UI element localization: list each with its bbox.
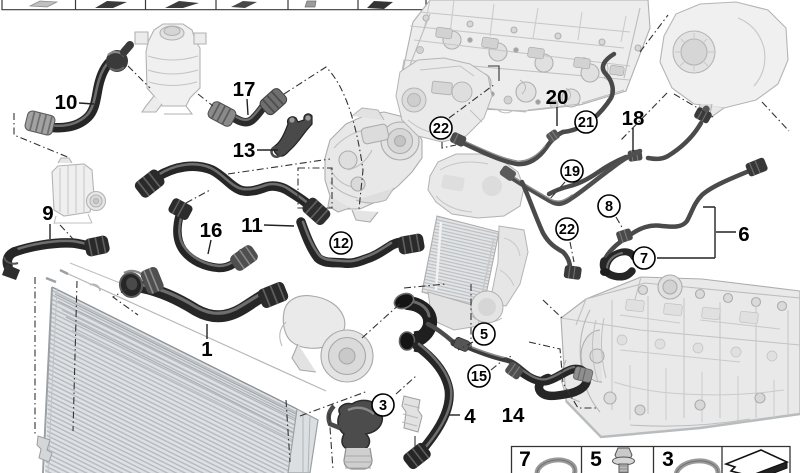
svg-text:3: 3 xyxy=(379,398,387,414)
svg-text:7: 7 xyxy=(640,251,648,267)
svg-text:11: 11 xyxy=(241,214,263,237)
svg-text:7: 7 xyxy=(519,448,531,471)
svg-text:13: 13 xyxy=(233,139,256,162)
svg-text:5: 5 xyxy=(480,327,488,343)
svg-text:17: 17 xyxy=(233,78,256,101)
svg-text:5: 5 xyxy=(590,448,602,471)
svg-text:20: 20 xyxy=(546,86,569,109)
svg-text:10: 10 xyxy=(55,91,78,114)
svg-text:21: 21 xyxy=(578,115,594,131)
svg-text:16: 16 xyxy=(200,219,223,242)
svg-text:9: 9 xyxy=(42,202,53,225)
svg-text:14: 14 xyxy=(502,404,525,427)
svg-text:4: 4 xyxy=(464,405,476,428)
svg-text:19: 19 xyxy=(564,164,580,180)
svg-text:6: 6 xyxy=(738,223,749,246)
svg-text:18: 18 xyxy=(622,107,645,130)
svg-text:1: 1 xyxy=(201,338,212,361)
svg-text:22: 22 xyxy=(559,222,575,238)
svg-text:3: 3 xyxy=(662,448,674,471)
svg-text:8: 8 xyxy=(605,199,613,215)
svg-text:15: 15 xyxy=(471,369,487,385)
svg-text:12: 12 xyxy=(333,236,349,252)
svg-text:22: 22 xyxy=(433,121,449,137)
